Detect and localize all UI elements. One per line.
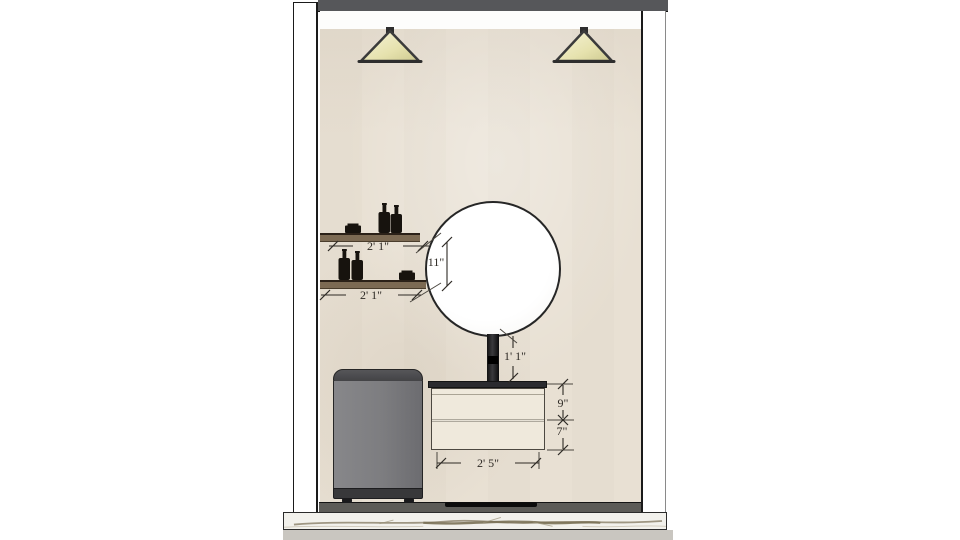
washer-foot-left — [342, 498, 352, 503]
wall-shelf-upper — [320, 233, 420, 242]
vanity-countertop — [428, 381, 547, 388]
vanity-floor-shadow — [445, 502, 537, 507]
wall-shelf-lower — [320, 280, 426, 289]
round-mirror — [425, 201, 561, 337]
washing-machine — [333, 369, 423, 503]
left-wall-section — [293, 2, 318, 512]
right-wall-section — [641, 11, 666, 512]
vanity-cabinet — [431, 388, 545, 450]
elevation-canvas: 2' 1" 2' 1" 11" 1' 1" — [0, 0, 960, 540]
vanity-top-reveal-line — [432, 394, 544, 395]
washer-foot-right — [404, 498, 414, 503]
soffit-band — [320, 11, 641, 30]
marble-floor-section — [283, 512, 667, 530]
vanity-drawer-divider — [432, 419, 544, 422]
marble-veins — [284, 513, 666, 529]
floor-base-strip — [283, 530, 673, 540]
washing-machine-body — [333, 381, 423, 489]
mirror-stem-joint — [488, 356, 498, 364]
